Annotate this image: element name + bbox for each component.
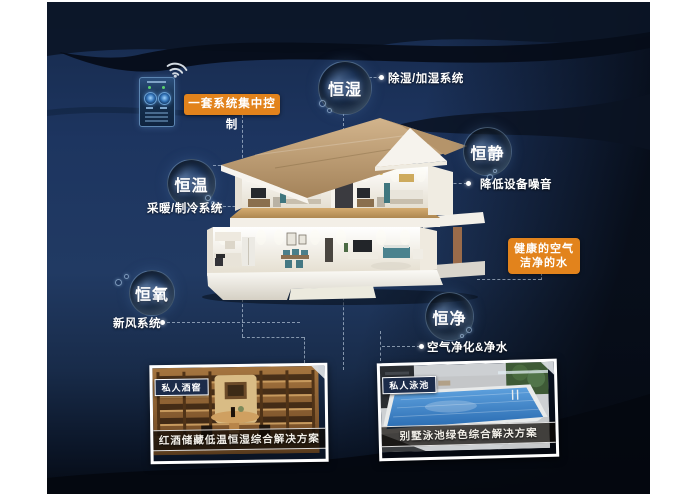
- panel-status-led: [162, 86, 165, 89]
- pool-photo: 私人泳池 别墅泳池绿色综合解决方案: [377, 359, 560, 462]
- health-badge-line2: 洁净的水: [510, 256, 578, 270]
- wine-cellar-photo: 私人酒窖 红酒储藏低温恒湿综合解决方案: [149, 363, 328, 464]
- panel-knob-label: [146, 107, 153, 109]
- photo-corner-fold: [311, 366, 324, 379]
- connector-dot: [419, 344, 424, 349]
- connector-health-badge-v: [541, 273, 542, 280]
- central-control-badge: 一套系统集中控制: [184, 94, 280, 115]
- bubble-constant-quiet: 恒静: [463, 127, 512, 176]
- health-badge-line1: 健康的空气: [510, 242, 578, 256]
- mini-bubble: [319, 100, 326, 107]
- connector-to-pool-photo: [380, 331, 381, 361]
- pool-tag: 私人泳池: [382, 376, 436, 394]
- connector-dot: [379, 75, 384, 80]
- label-dehumidify-humidify-system: 除湿/加湿系统: [388, 70, 464, 86]
- bubble-constant-oxygen: 恒氧: [129, 270, 175, 316]
- wine-cellar-caption: 红酒储藏低温恒湿综合解决方案: [153, 428, 325, 451]
- mini-bubble: [124, 274, 129, 279]
- wine-cellar-tag: 私人酒窖: [155, 378, 209, 396]
- mini-bubble: [466, 327, 472, 333]
- panel-text-row: [145, 120, 168, 122]
- connector-dot: [466, 181, 471, 186]
- poster-page: 一套系统集中控制 健康的空气 洁净的水 恒湿 恒静 恒温 恒氧 恒净 除湿/加湿…: [0, 0, 700, 497]
- label-air-water-purification: 空气净化&净水: [427, 339, 508, 355]
- panel-header-bar: [147, 81, 166, 83]
- label-noise-reduction: 降低设备噪音: [480, 176, 552, 192]
- mini-bubble: [493, 169, 497, 173]
- bubble-constant-humidity: 恒湿: [318, 61, 372, 115]
- house-illustration: [195, 110, 485, 305]
- panel-knob: [144, 92, 157, 105]
- bubble-constant-clean: 恒净: [425, 292, 474, 341]
- panel-knob: [158, 92, 171, 105]
- photo-corner-fold: [541, 362, 554, 375]
- infographic-canvas: 一套系统集中控制 健康的空气 洁净的水 恒湿 恒静 恒温 恒氧 恒净 除湿/加湿…: [47, 2, 650, 494]
- mini-bubble: [115, 279, 122, 286]
- panel-knob-label: [160, 107, 167, 109]
- health-badge: 健康的空气 洁净的水: [508, 238, 580, 274]
- panel-text-row: [145, 116, 168, 118]
- panel-text-row: [145, 112, 168, 114]
- label-fresh-air-system: 新风系统: [113, 315, 161, 331]
- mini-bubble: [460, 334, 464, 338]
- connector-freshair: [167, 322, 300, 323]
- connector-health-badge-h: [477, 279, 541, 280]
- smart-control-panel: [139, 77, 175, 127]
- panel-status-led: [148, 86, 151, 89]
- connector-purify: [382, 346, 420, 347]
- label-hvac-system: 采暖/制冷系统: [147, 200, 223, 216]
- mini-bubble: [327, 108, 332, 113]
- connector-step-horizontal: [242, 337, 304, 338]
- connector-to-cellar-photo: [304, 337, 305, 363]
